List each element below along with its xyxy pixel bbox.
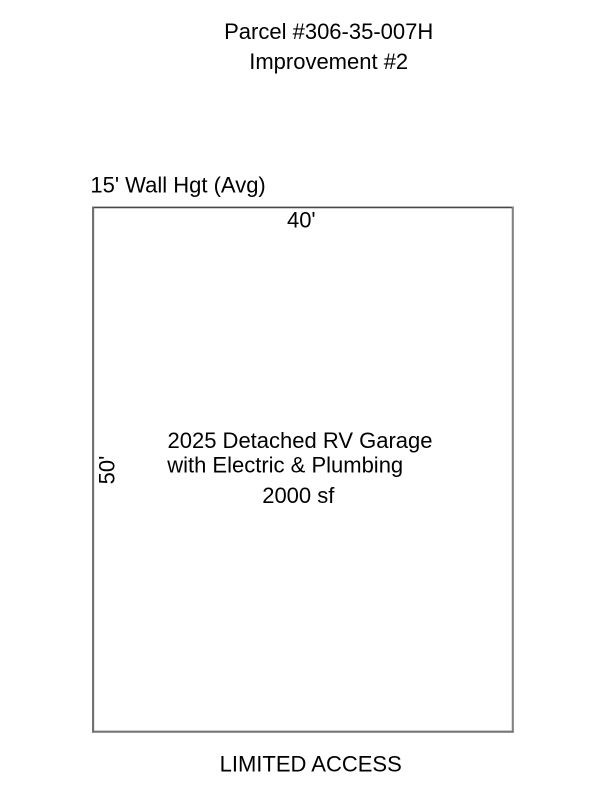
svg-text:40': 40' — [287, 208, 316, 233]
svg-text:50': 50' — [95, 456, 120, 485]
svg-text:with Electric & Plumbing: with Electric & Plumbing — [166, 453, 403, 478]
svg-text:LIMITED ACCESS: LIMITED ACCESS — [220, 752, 402, 777]
svg-text:2000 sf: 2000 sf — [262, 483, 335, 508]
svg-text:15' Wall Hgt (Avg): 15' Wall Hgt (Avg) — [90, 173, 265, 198]
svg-text:Parcel #306-35-007H: Parcel #306-35-007H — [224, 19, 433, 44]
svg-text:2025 Detached RV Garage: 2025 Detached RV Garage — [168, 428, 433, 453]
svg-text:Improvement #2: Improvement #2 — [249, 49, 408, 74]
